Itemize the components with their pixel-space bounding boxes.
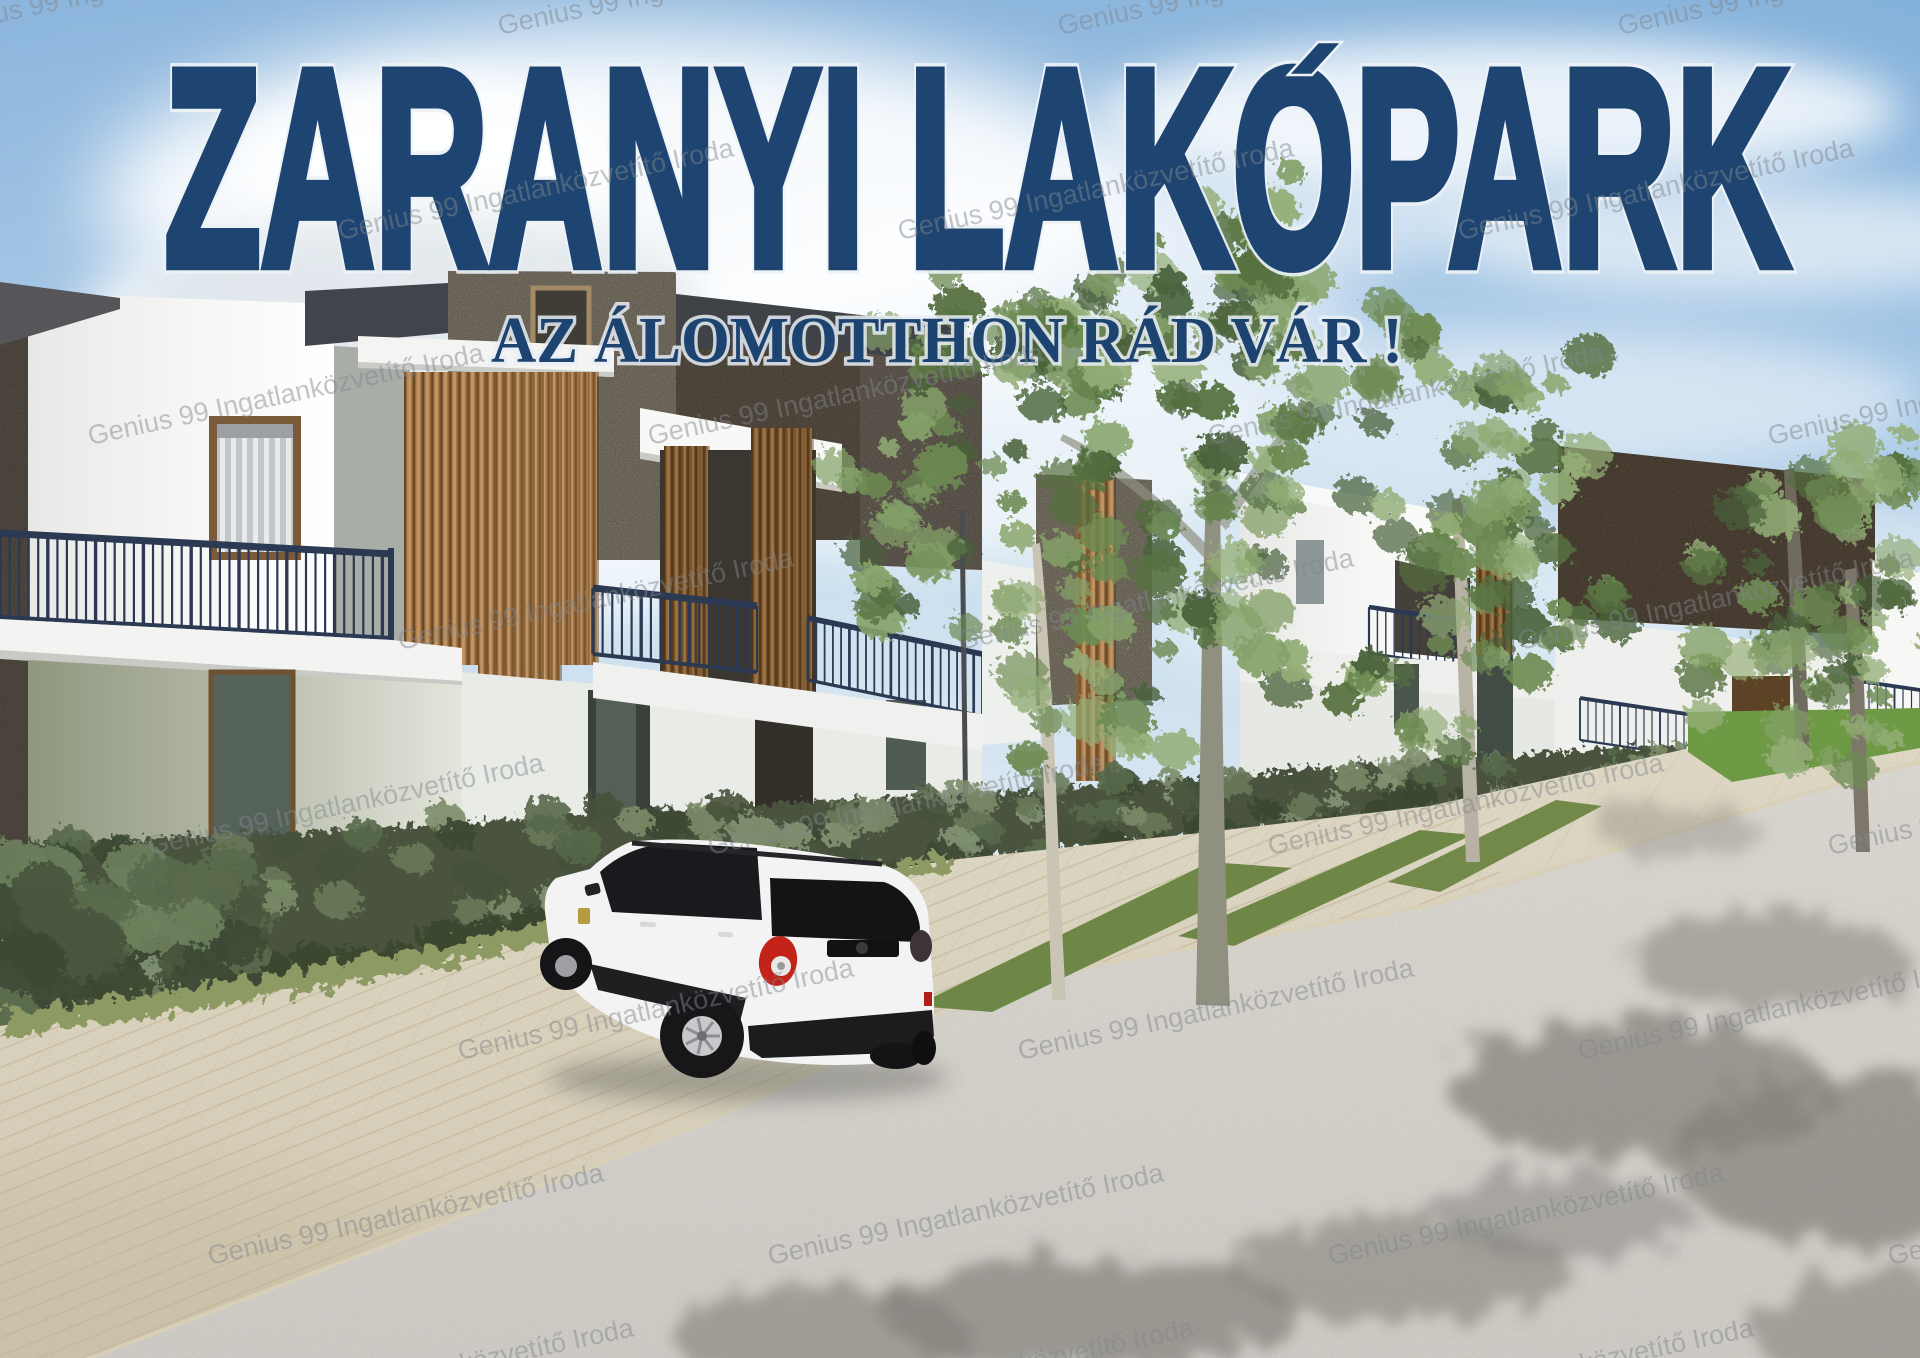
svg-text:ZARANYI LAKOPARK: ZARANYI LAKOPARK (164, 12, 1789, 325)
